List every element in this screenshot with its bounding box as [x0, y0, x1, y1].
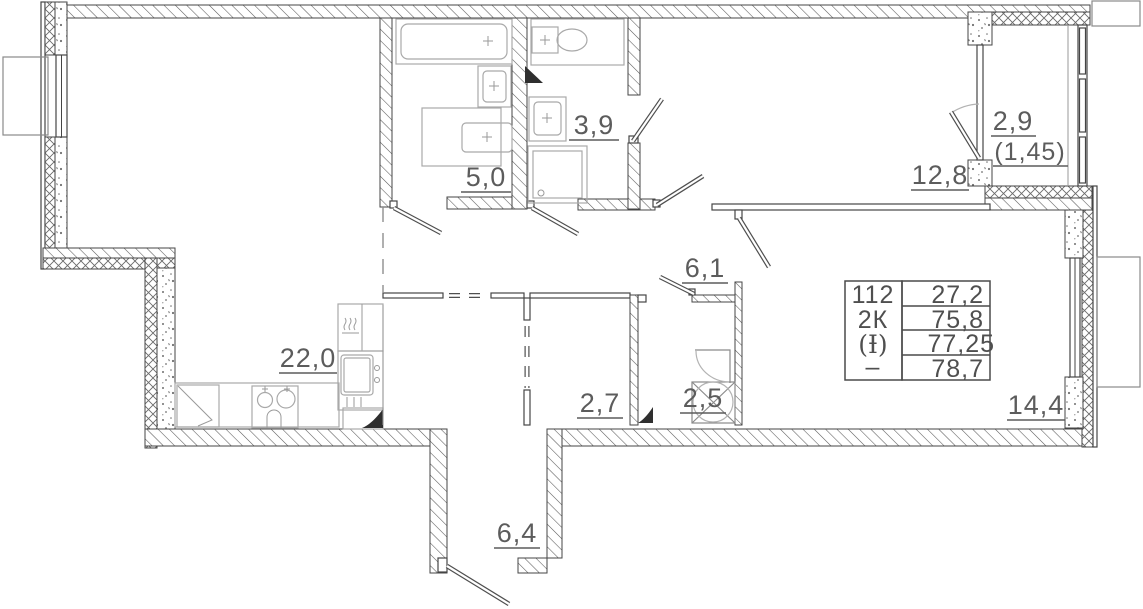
wall-left-upper-concrete	[55, 2, 67, 55]
wall-wardrobe-left-lower	[524, 390, 530, 425]
wall-wardrobe-north	[530, 293, 630, 298]
balcony-glazing-panel-3	[1080, 137, 1086, 183]
corner-detail-wardrobe	[638, 407, 653, 423]
room-label-living-kitchen: 22,0	[280, 343, 337, 373]
room-label-bedroom-right: 14,4	[1008, 390, 1065, 420]
wall-kitchen-left	[145, 258, 157, 448]
room-label-toilet-top: 3,9	[574, 110, 615, 140]
wall-bath-south	[447, 197, 512, 209]
stamp-dash: –	[866, 353, 881, 381]
balcony-wall-bottom-hatch	[985, 198, 1092, 210]
interior-walls	[380, 18, 990, 425]
wall-kitchen-left-concrete	[157, 268, 175, 429]
wall-entry-left	[430, 429, 447, 573]
balcony-pillar-top	[968, 12, 992, 45]
room-label-bathroom: 5,0	[466, 162, 507, 192]
floor-plan: 5,0 3,9 2,9 (1,45) 12,8 6,1 22,0 2,7 2,5…	[0, 0, 1143, 609]
wall-toilet-bottom-left	[630, 295, 638, 425]
balcony-glazing-panel-2	[1080, 79, 1086, 132]
wall-toilet-bottom-north	[692, 295, 735, 302]
wall-right-pillar-top	[1065, 210, 1083, 258]
stamp-apartment-number: 112	[852, 281, 895, 309]
entry-door-jamb	[438, 558, 447, 572]
wall-left-lower-concrete	[55, 137, 67, 248]
bathtub	[396, 19, 512, 64]
wall-entry-step	[518, 558, 547, 573]
door-toilet-top	[527, 201, 578, 234]
room-label-hallway: 6,1	[685, 253, 726, 283]
balcony-wall-top	[985, 12, 1090, 25]
door-bedroom12	[629, 99, 662, 143]
corner-detail-toilet-top	[525, 66, 543, 83]
wall-right	[1082, 186, 1093, 447]
balcony-door-swing-arc	[951, 104, 979, 113]
stamp-area-living: 27,2	[931, 281, 984, 309]
wall-bottom-right	[548, 429, 1097, 446]
wall-top	[55, 5, 1090, 18]
wall-bedroom12-lower	[628, 143, 640, 209]
wall-hall-south-1	[383, 293, 443, 298]
wall-bedroom12-upper	[628, 18, 640, 95]
room-label-wardrobe: 2,7	[580, 388, 621, 418]
duct-shaft-quarter	[695, 350, 730, 383]
balcony-glazing-panel-1	[1080, 28, 1086, 74]
bath-sink	[478, 66, 511, 107]
wall-toilet-bottom-right	[735, 282, 742, 425]
neighbor-structure-stub	[1092, 1, 1140, 26]
wall-entry-right	[547, 429, 562, 558]
door-entrance	[447, 566, 509, 604]
balcony-pillar-bottom	[968, 160, 992, 186]
stamp-area-reduced: 77,25	[927, 330, 995, 358]
stamp-area-total: 78,7	[931, 355, 984, 383]
kitchen-counter	[175, 383, 339, 427]
room-label-toilet-bottom: 2,5	[683, 383, 724, 413]
door-bedroom14	[739, 218, 769, 267]
toilet-bowl	[532, 27, 587, 53]
kitchen-hood-cabinet	[338, 304, 383, 351]
room-label-bedroom-top-right: 12,8	[912, 160, 969, 190]
room-label-balcony-reduced: (1,45)	[994, 138, 1065, 166]
balcony-window-door-unit	[977, 45, 983, 160]
wall-hall-south-2	[491, 293, 524, 298]
door-hall-bedroom12	[653, 176, 703, 207]
kitchen-sink	[338, 351, 383, 410]
wall-jog-hatch	[43, 248, 175, 258]
balcony-structure	[951, 1, 1140, 210]
wall-hall-bedroom14	[712, 204, 990, 210]
room-label-entry-hall: 6,4	[497, 518, 538, 548]
wall-wardrobe-left-upper	[524, 298, 530, 320]
floor-plan-drawing: 5,0 3,9 2,9 (1,45) 12,8 6,1 22,0 2,7 2,5…	[0, 0, 1143, 609]
fixtures	[175, 19, 735, 429]
room-label-balcony: 2,9	[993, 106, 1034, 136]
wall-right-pillar-bottom	[1065, 377, 1083, 428]
balcony-door	[951, 104, 979, 158]
wall-toilet-south	[578, 199, 655, 210]
wall-left-upper	[45, 2, 55, 55]
window-right-outside-box	[1097, 257, 1140, 387]
wall-between-baths	[512, 18, 527, 209]
washing-machine	[422, 108, 512, 166]
stove	[252, 386, 298, 428]
fridge	[177, 385, 219, 427]
apartment-stamp: 112 2К (Ɨ) – 27,2 75,8 77,25 78,7	[845, 281, 995, 383]
toilet-sink	[529, 97, 566, 141]
wall-living-bath	[380, 18, 392, 207]
balcony-wall-bottom-cross	[985, 186, 1092, 198]
wall-bottom-left	[145, 429, 430, 446]
toilet-bottom-jamb	[638, 295, 646, 302]
shower-tray	[528, 146, 587, 203]
door-bathroom	[390, 201, 441, 233]
kitchen-under-counter-appliance	[343, 408, 383, 429]
